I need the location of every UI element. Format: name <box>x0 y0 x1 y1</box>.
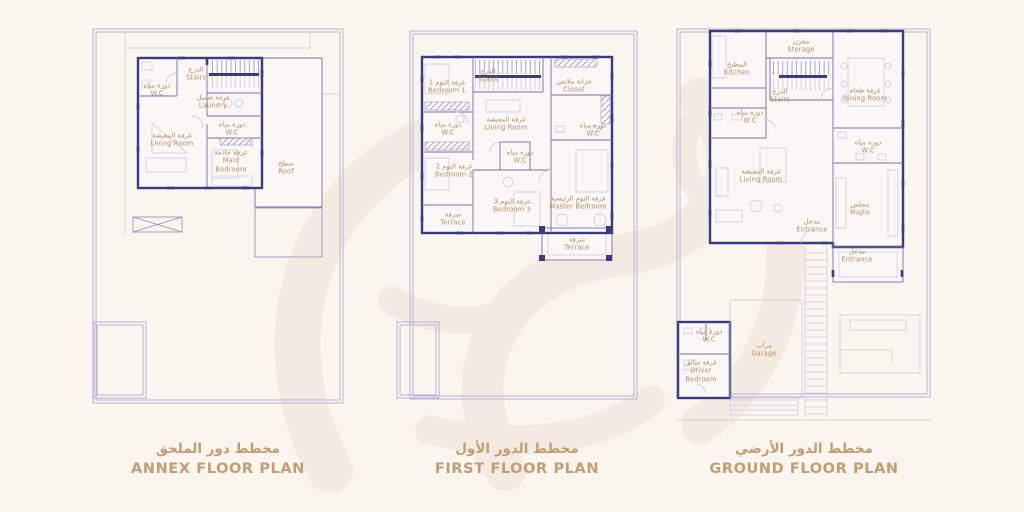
room-label-wc-left: دورة مياهW.C <box>426 121 470 138</box>
room-label-living-room: غرفة المعيشةLiving Room <box>731 168 791 185</box>
room-label-wc-left: دورة مياهW.C <box>728 109 772 126</box>
plan-annex: الدرجStairsدورة مياهW.Cغرفة غسيلLaundryد… <box>92 28 344 404</box>
room-label-bedroom-3: غرفة النوم 3Bedroom 3 <box>485 198 539 215</box>
first-title-arabic: مخطط الدور الأول <box>367 441 667 457</box>
plan-title-annex: مخطط دور الملحق ANNEX FLOOR PLAN <box>68 441 368 477</box>
room-label-stairs: الدرجStairs <box>760 88 800 105</box>
room-label-stairs: الدرجStairs <box>468 68 508 85</box>
room-label-wc-middle: دورة مياهW.C <box>498 149 542 166</box>
plan-first-floor: غرفة النوم 1Bedroom 1الدرجStairsخزانة مل… <box>396 30 638 400</box>
floor-plans-sheet: الدرجStairsدورة مياهW.Cغرفة غسيلLaundryد… <box>0 0 1024 512</box>
room-label-living-room: غرفة المعيشةLiving Room <box>142 132 202 149</box>
room-label-entrance-main: مدخلEntrance <box>788 218 836 235</box>
ground-title-arabic: مخطط الدور الأرضي <box>654 441 954 457</box>
room-label-roof: سطحRoof <box>266 160 306 177</box>
room-label-master-bedroom: غرفة النوم الرئيسيةMaster Bedroom <box>542 195 614 212</box>
plan-title-ground-floor: مخطط الدور الأرضي GROUND FLOOR PLAN <box>654 441 954 477</box>
ground-title-english: GROUND FLOOR PLAN <box>654 461 954 477</box>
room-label-driver-bedroom: غرفة سائقDriver Bedroom <box>681 359 721 384</box>
annex-room-labels: الدرجStairsدورة مياهW.Cغرفة غسيلLaundryد… <box>92 28 344 404</box>
room-label-wc-garage: دورة مياهW.C <box>687 328 731 345</box>
annex-title-arabic: مخطط دور الملحق <box>68 441 368 457</box>
room-label-closet: خزانة ملابسCloset <box>546 78 602 95</box>
room-label-maid-bedroom: غرفة خادمةMaid Bedroom <box>211 149 251 174</box>
plan-ground-floor: مخزنStorageالمطبخKitchenالدرجStairsغرفة … <box>676 28 932 424</box>
first-title-english: FIRST FLOOR PLAN <box>367 461 667 477</box>
room-label-bedroom-2: غرفة النوم 2Bedroom 2 <box>427 163 481 180</box>
ground-room-labels: مخزنStorageالمطبخKitchenالدرجStairsغرفة … <box>676 28 932 424</box>
room-label-storage: مخزنStorage <box>779 38 823 55</box>
room-label-dining-room: غرفة طعامDining Room <box>837 87 893 104</box>
room-label-wc-top: دورة مياهW.C <box>135 82 179 99</box>
room-label-garage: مرآبGarage <box>742 342 786 359</box>
annex-title-english: ANNEX FLOOR PLAN <box>68 461 368 477</box>
plan-title-first-floor: مخطط الدور الأول FIRST FLOOR PLAN <box>367 441 667 477</box>
room-label-wc-right: دورة مياهW.C <box>571 122 615 139</box>
room-label-terrace-bottom: شرفةTerrace <box>555 236 599 253</box>
room-label-wc-mid: دورة مياهW.C <box>210 121 254 138</box>
room-label-kitchen: المطبخKitchen <box>713 61 761 78</box>
room-label-living-room: غرفة المعيشةLiving Room <box>476 116 536 133</box>
room-label-bedroom-1: غرفة النوم 1Bedroom 1 <box>420 79 474 96</box>
room-label-laundry: غرفة غسيلLaundry <box>189 94 237 111</box>
first-room-labels: غرفة النوم 1Bedroom 1الدرجStairsخزانة مل… <box>396 30 638 400</box>
room-label-wc-right: دورة مياهW.C <box>846 139 890 156</box>
room-label-entrance-porch: مدخلEntrance <box>833 248 881 265</box>
room-label-terrace-left: شرفةTerrace <box>431 211 475 228</box>
room-label-stairs: الدرجStairs <box>176 66 216 83</box>
room-label-majlis: مجلسMajlis <box>838 201 882 218</box>
